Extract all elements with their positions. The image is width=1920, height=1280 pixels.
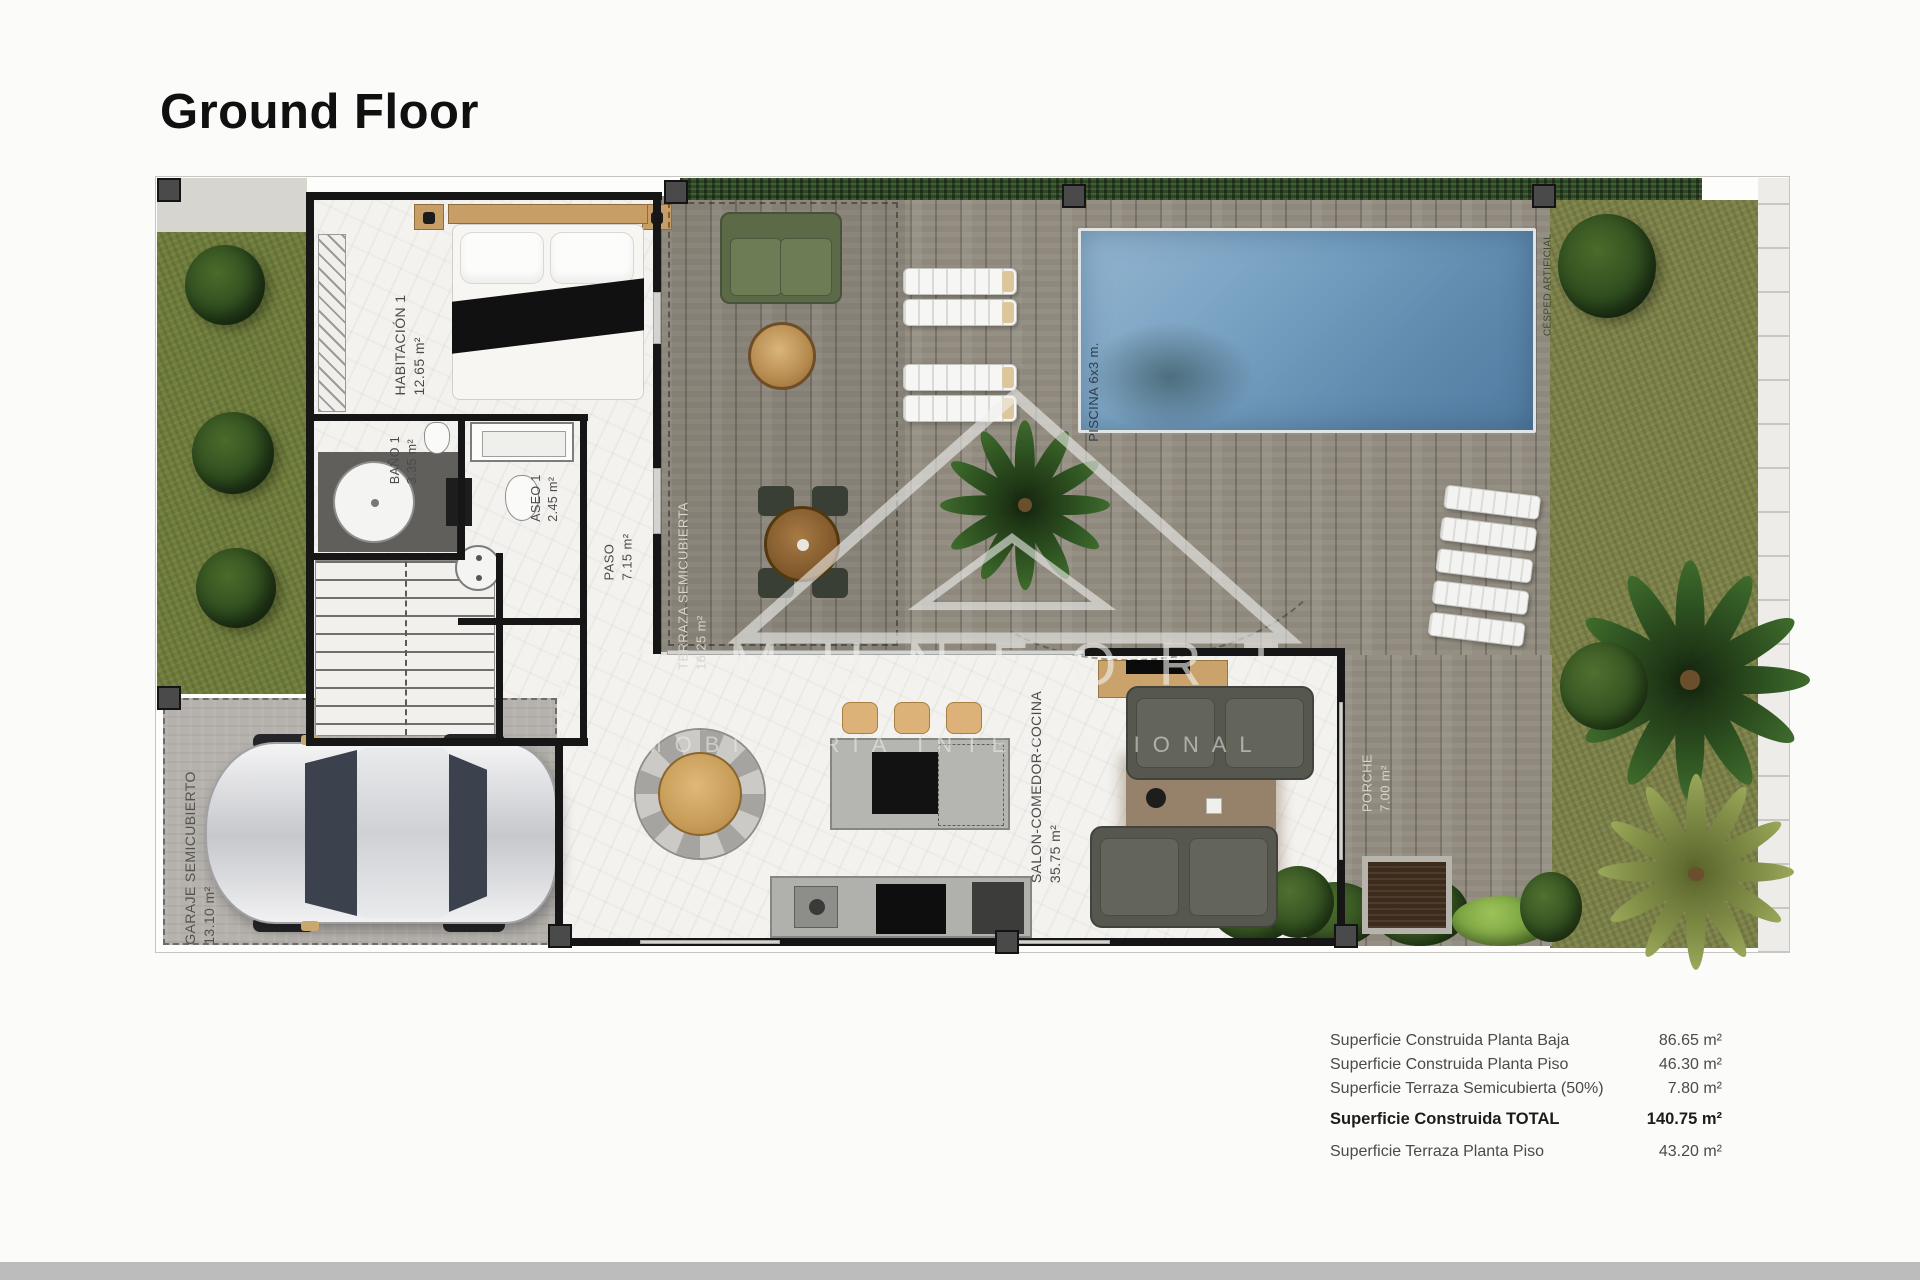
sun-lounger: [903, 395, 1017, 422]
room-label-aseo: ASEO 1 2.45 m²: [528, 474, 562, 522]
sun-lounger: [903, 268, 1017, 295]
car-top-view: [205, 736, 557, 930]
vanity-unit: [470, 422, 574, 462]
room-label-garaje: GARAJE SEMICUBIERTO 13.10 m²: [181, 771, 219, 945]
dining-table: [658, 752, 742, 836]
bush: [1520, 872, 1582, 942]
wall: [306, 553, 465, 560]
round-tree: [196, 548, 276, 628]
porch-opening: [1339, 702, 1343, 860]
car-rear-window: [449, 754, 487, 912]
sliding-glass-door: [667, 650, 1085, 655]
sun-lounger: [903, 364, 1017, 391]
structural-pier: [157, 178, 181, 202]
room-label-bedroom: HABITACIÓN 1 12.65 m²: [391, 294, 429, 395]
summary-label: Superficie Construida Planta Piso: [1330, 1056, 1568, 1074]
pillow: [460, 232, 544, 284]
toilet: [424, 422, 450, 454]
summary-value: 46.30 m²: [1632, 1056, 1722, 1074]
wall: [653, 192, 661, 654]
sofa: [1090, 826, 1278, 928]
palm-shadow-on-pool: [1085, 322, 1255, 432]
summary-row: Superficie Construida Planta Baja 86.65 …: [1330, 1032, 1722, 1050]
bar-stool: [894, 702, 930, 734]
window: [640, 940, 780, 944]
summary-label: Superficie Terraza Semicubierta (50%): [1330, 1080, 1604, 1098]
structural-pier: [1334, 924, 1358, 948]
wall: [580, 414, 587, 746]
room-label-paso: PASO 7.15 m²: [600, 534, 635, 581]
wall: [306, 738, 588, 746]
round-tree: [185, 245, 265, 325]
wall: [306, 192, 662, 200]
structural-pier: [995, 930, 1019, 954]
wardrobe: [318, 234, 346, 412]
room-label-salon: SALON-COMEDOR-COCINA 35.75 m²: [1027, 691, 1065, 883]
window: [653, 468, 661, 534]
summary-value: 140.75 m²: [1632, 1110, 1722, 1129]
wall: [458, 618, 587, 625]
structural-pier: [1062, 184, 1086, 208]
double-bed: [448, 204, 648, 402]
palm-tree: [940, 420, 1110, 590]
wall: [496, 553, 503, 746]
summary-value: 86.65 m²: [1632, 1032, 1722, 1050]
summary-label: Superficie Construida TOTAL: [1330, 1110, 1560, 1129]
summary-row-total: Superficie Construida TOTAL 140.75 m²: [1330, 1110, 1722, 1129]
page-title: Ground Floor: [160, 84, 479, 140]
window: [653, 292, 661, 344]
bar-stool: [842, 702, 878, 734]
car-mirror: [301, 921, 319, 931]
structural-pier: [157, 686, 181, 710]
area-summary-table: Superficie Construida Planta Baja 86.65 …: [1330, 1032, 1722, 1167]
bed-headboard: [448, 204, 648, 224]
pool-label: PISCINA 6x3 m.: [1085, 342, 1103, 442]
wall: [555, 740, 563, 946]
stacked-sun-loungers: [1427, 484, 1546, 653]
wall: [1085, 648, 1344, 656]
round-tree: [1558, 214, 1656, 318]
structural-pier: [548, 924, 572, 948]
car-windshield: [305, 750, 357, 916]
oven: [876, 884, 946, 934]
summary-value: 43.20 m²: [1632, 1143, 1722, 1161]
pillow: [550, 232, 634, 284]
kitchen-sink: [794, 886, 838, 928]
bush: [1560, 642, 1648, 730]
fridge: [972, 882, 1024, 934]
round-tree: [192, 412, 274, 494]
summary-value: 7.80 m²: [1632, 1080, 1722, 1098]
sun-lounger: [903, 299, 1017, 326]
side-table: [1206, 798, 1222, 814]
wall: [458, 414, 465, 560]
tv: [1126, 660, 1190, 674]
structural-pier: [1532, 184, 1556, 208]
floor-lamp: [1146, 788, 1166, 808]
sofa: [1126, 686, 1314, 780]
cooktop: [872, 752, 938, 814]
summary-label: Superficie Construida Planta Baja: [1330, 1032, 1569, 1050]
room-label-bath: BAÑO 1 3.35 m²: [387, 436, 421, 484]
car-roof: [357, 748, 449, 918]
summary-label: Superficie Terraza Planta Piso: [1330, 1143, 1544, 1161]
wall: [306, 414, 588, 421]
summary-row: Superficie Terraza Planta Piso 43.20 m²: [1330, 1143, 1722, 1161]
floor-plan-page: Ground Floor: [0, 0, 1920, 1280]
wall: [306, 192, 314, 746]
fan-palm: [1598, 792, 1794, 956]
room-label-porche: PORCHE 7.00 m²: [1358, 754, 1393, 812]
garden-label: CÉSPED ARTIFICIAL: [1541, 234, 1555, 336]
bar-stool: [946, 702, 982, 734]
structural-pier: [664, 180, 688, 204]
summary-row: Superficie Terraza Semicubierta (50%) 7.…: [1330, 1080, 1722, 1098]
nightstand: [414, 204, 444, 230]
footer-strip: [0, 1262, 1920, 1280]
summary-row: Superficie Construida Planta Piso 46.30 …: [1330, 1056, 1722, 1074]
doormat: [1362, 856, 1452, 934]
room-label-terraza: TERRAZA SEMICUBIERTA 16.25 m²: [674, 502, 709, 670]
